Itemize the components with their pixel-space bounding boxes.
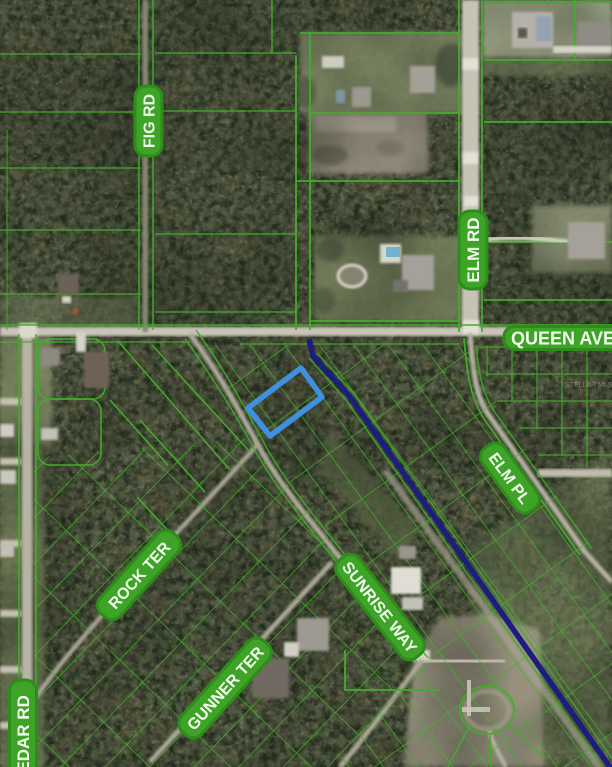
svg-text:QUEEN AVE: QUEEN AVE <box>511 329 612 349</box>
svg-text:ELM RD: ELM RD <box>464 217 483 282</box>
svg-text:FIG RD: FIG RD <box>142 94 159 148</box>
svg-text:CEDAR RD: CEDAR RD <box>14 695 33 767</box>
svg-text:STELLAR MLS: STELLAR MLS <box>565 382 612 389</box>
